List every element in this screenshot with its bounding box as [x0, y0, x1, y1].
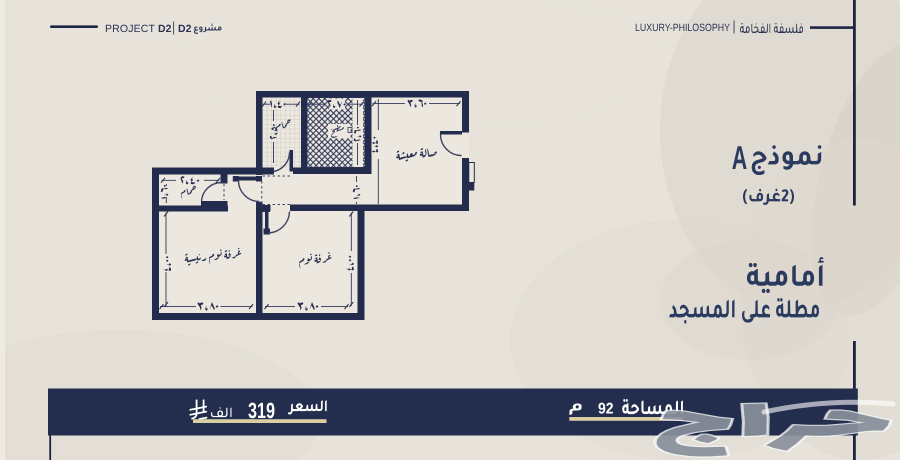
svg-text:PROJECT D2: PROJECT D2 [105, 23, 172, 35]
svg-text:D2: D2 [178, 23, 192, 35]
svg-text:319: 319 [248, 398, 275, 423]
svg-text:LUXURY-PHILOSOPHY: LUXURY-PHILOSOPHY [635, 22, 730, 34]
svg-text:A: A [732, 139, 748, 176]
svg-text:92: 92 [598, 400, 614, 417]
